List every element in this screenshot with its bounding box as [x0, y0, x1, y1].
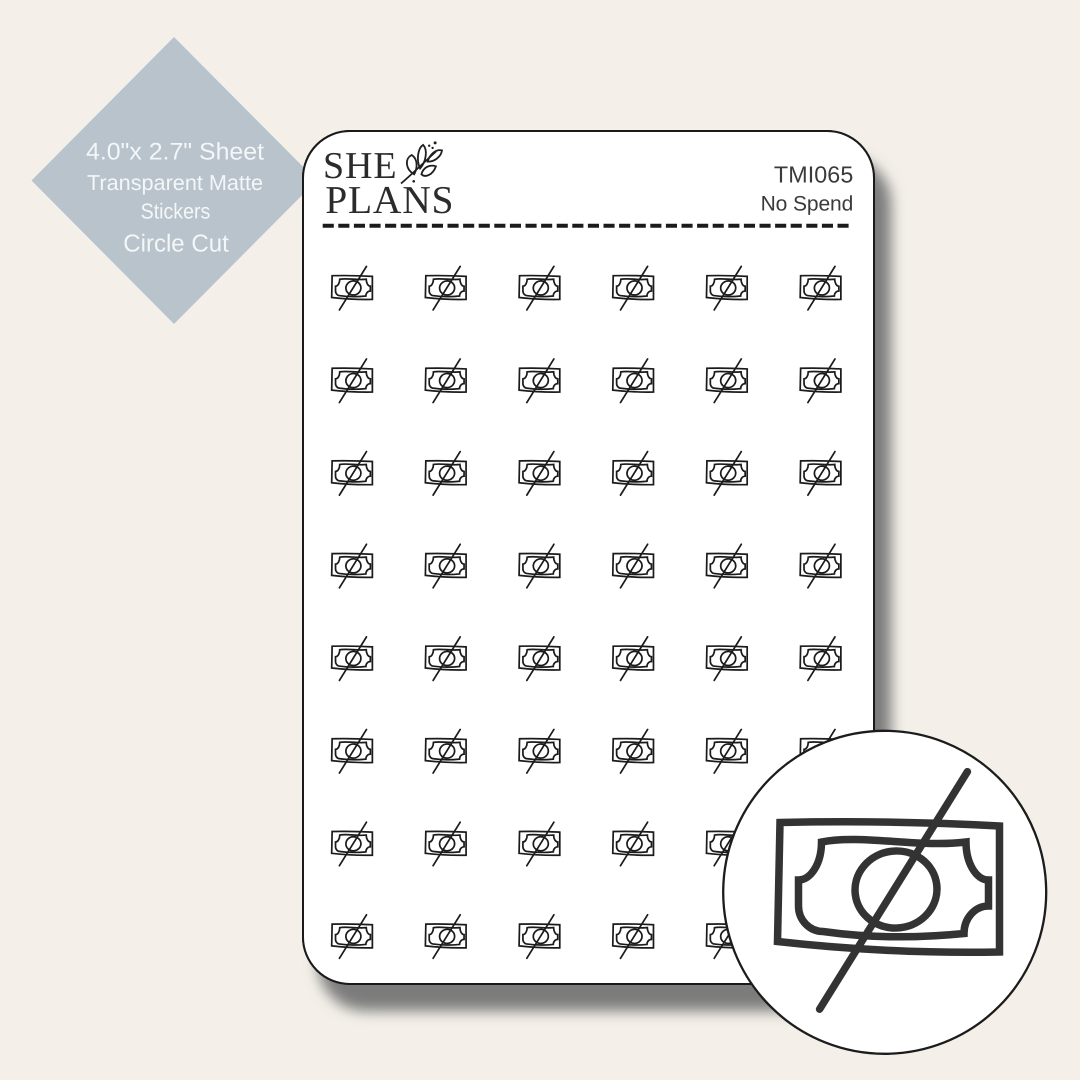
- svg-text:Stickers: Stickers: [141, 199, 211, 224]
- svg-text:4.0"x 2.7" Sheet: 4.0"x 2.7" Sheet: [86, 139, 264, 166]
- svg-text:Circle Cut: Circle Cut: [123, 230, 229, 257]
- svg-text:No Spend: No Spend: [761, 193, 854, 216]
- svg-text:PLANS: PLANS: [325, 178, 453, 222]
- svg-text:Transparent Matte: Transparent Matte: [87, 170, 263, 195]
- svg-text:TMI065: TMI065: [774, 162, 853, 188]
